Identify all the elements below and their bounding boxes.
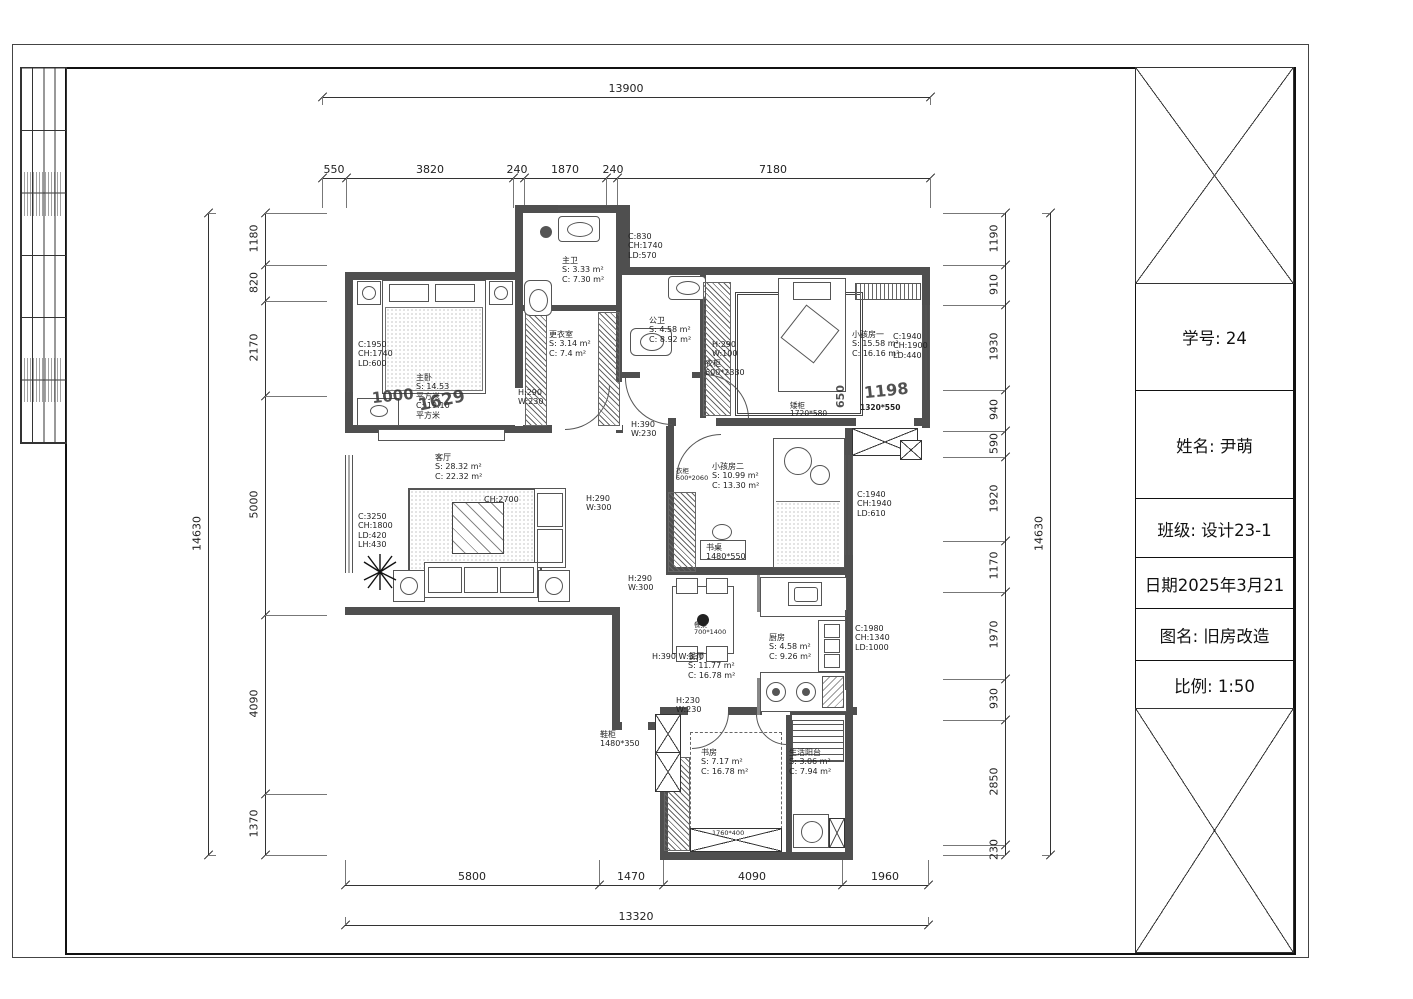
sofa-side xyxy=(534,488,566,568)
drawing-name-text: 图名: 旧房改造 xyxy=(1160,623,1270,647)
dim-extension xyxy=(208,213,216,214)
window-symbol xyxy=(845,455,853,555)
dim-label: 4090 xyxy=(722,870,782,883)
dim-label: 1470 xyxy=(601,870,661,883)
window-label-living: C:3250 CH:1800 LD:420 LH:430 xyxy=(358,512,393,550)
drawing-sheet: 学号: 24 姓名: 尹萌 班级: 设计23-1 日期2025年3月21 图名:… xyxy=(0,0,1413,999)
title-block-logo-box xyxy=(1135,67,1294,284)
wall xyxy=(845,715,853,860)
dim-label: 14630 xyxy=(1033,504,1046,564)
dim-label: 930 xyxy=(988,669,1001,729)
window-label-kids2: C:1940 CH:1940 LD:610 xyxy=(857,490,892,518)
wall xyxy=(622,267,930,275)
label-dining-table: 餐桌 700*1400 xyxy=(694,622,726,636)
dim-label: 2850 xyxy=(988,752,1001,812)
dim-label: 1970 xyxy=(988,605,1001,665)
shoe-cabinet xyxy=(655,714,681,754)
scale-text: 比例: 1:50 xyxy=(1174,673,1255,697)
wall xyxy=(345,272,523,280)
class-text: 班级: 设计23-1 xyxy=(1157,517,1271,541)
dim-line xyxy=(345,925,928,926)
door-opening xyxy=(676,418,716,426)
dim-extension xyxy=(322,97,323,105)
title-block-date: 日期2025年3月21 xyxy=(1135,557,1294,610)
revision-strip-text xyxy=(24,172,62,216)
dim-label: 7180 xyxy=(743,163,803,176)
title-block-drawing-name: 图名: 旧房改造 xyxy=(1135,608,1294,662)
dim-extension xyxy=(345,860,346,885)
wall xyxy=(660,852,853,860)
dining-chair xyxy=(676,578,698,594)
dim-extension xyxy=(346,178,347,208)
room-label-balcony: 生活阳台 S: 3.06 m² C: 7.94 m² xyxy=(789,748,831,776)
label-wardrobe-kids2: 衣柜 500*2060 xyxy=(676,468,708,482)
passage-opening xyxy=(552,425,616,433)
title-block-student-id: 学号: 24 xyxy=(1135,282,1294,392)
window-symbol xyxy=(558,205,610,213)
room-label-guest-bath: 公卫 S: 4.58 m² C: 8.92 m² xyxy=(649,316,691,344)
door-label-living-pass: H:290 W:300 xyxy=(586,494,611,513)
kitchen-opening xyxy=(757,612,760,678)
title-block-bottom-box xyxy=(1135,708,1294,953)
dim-extension xyxy=(599,860,600,885)
dim-extension xyxy=(265,855,327,856)
dim-line xyxy=(208,213,209,855)
dim-extension xyxy=(1042,855,1050,856)
door-label-study: H:230 W:230 xyxy=(676,696,701,715)
dim-extension xyxy=(617,178,618,208)
window-label-kitchen: C:1980 CH:1340 LD:1000 xyxy=(855,624,890,652)
dim-extension xyxy=(208,855,216,856)
dim-label: 1920 xyxy=(988,469,1001,529)
wardrobe-hangers xyxy=(598,312,620,426)
dim-label: 1370 xyxy=(248,794,261,854)
window-symbol xyxy=(345,455,353,573)
dim-extension xyxy=(345,917,346,925)
shoe-cabinet xyxy=(655,752,681,792)
title-block-name: 姓名: 尹萌 xyxy=(1135,390,1294,500)
dim-label: 240 xyxy=(583,163,643,176)
entry-opening xyxy=(622,722,648,730)
kids2-bed xyxy=(773,438,845,568)
dim-extension xyxy=(265,794,327,795)
dim-extension xyxy=(513,178,514,208)
door-label-dining: H:390 W:330 xyxy=(652,652,704,661)
dim-label: 5000 xyxy=(248,475,261,535)
room-label-kids2: 小孩房二 S: 10.99 m² C: 13.30 m² xyxy=(712,462,759,490)
wall xyxy=(515,205,523,280)
label-shoe-cabinet: 鞋柜 1480*350 xyxy=(600,731,640,749)
dim-extension xyxy=(265,265,327,266)
tv-table xyxy=(452,502,504,554)
student-id-text: 学号: 24 xyxy=(1182,325,1247,349)
door-label-kids2-top: H:390 W:230 xyxy=(631,420,656,439)
kitchen-sink xyxy=(788,582,822,606)
room-label-study: 书房 S: 7.17 m² C: 16.78 m² xyxy=(701,748,748,776)
washing-machine xyxy=(793,814,829,848)
stove-burner xyxy=(796,682,816,702)
dim-label: 910 xyxy=(988,255,1001,315)
dim-line xyxy=(322,97,930,98)
dim-extension xyxy=(322,178,323,208)
dim-extension xyxy=(606,178,607,208)
window-label-master: C:1950 CH:1740 LD:600 xyxy=(358,340,393,368)
dim-label: 590 xyxy=(988,414,1001,474)
dim-label: 14630 xyxy=(191,504,204,564)
dim-label: 3820 xyxy=(400,163,460,176)
fridge xyxy=(822,676,844,708)
dim-label: 13320 xyxy=(606,910,666,923)
dim-label: 820 xyxy=(248,253,261,313)
dim-label: 1930 xyxy=(988,317,1001,377)
cabinet-small xyxy=(900,440,922,460)
title-block-scale: 比例: 1:50 xyxy=(1135,660,1294,710)
dim-extension xyxy=(265,301,327,302)
dim-label: 5800 xyxy=(442,870,502,883)
dim-line xyxy=(1005,213,1006,855)
sofa-main xyxy=(424,562,538,598)
inner-dim-650: 650 xyxy=(835,385,848,408)
revision-strip-text xyxy=(24,358,62,402)
side-table xyxy=(538,570,570,602)
dim-extension xyxy=(930,178,931,208)
dim-label: 550 xyxy=(304,163,364,176)
dim-line xyxy=(1050,213,1051,855)
door-label-hall-wardrobe: H:290 W:100 xyxy=(712,340,737,359)
plant-icon xyxy=(362,552,398,592)
room-label-living: 客厅 S: 28.32 m² C: 22.32 m² xyxy=(435,453,482,481)
kids1-bed xyxy=(778,278,846,392)
dim-label: 230 xyxy=(988,820,1001,880)
nightstand xyxy=(357,281,381,305)
toilet xyxy=(524,280,552,316)
dim-extension xyxy=(265,213,327,214)
dim-label: 4090 xyxy=(248,674,261,734)
dim-line xyxy=(322,178,930,179)
dim-extension xyxy=(1042,213,1050,214)
room-label-master-bath: 主卫 S: 3.33 m² C: 7.30 m² xyxy=(562,256,604,284)
dim-extension xyxy=(663,860,664,885)
dim-extension xyxy=(930,97,931,105)
wardrobe-hangers xyxy=(525,312,547,426)
dim-extension xyxy=(265,615,327,616)
wall xyxy=(345,607,620,615)
dim-extension xyxy=(842,860,843,885)
ceiling-height-living: CH:2700 xyxy=(484,495,519,504)
nightstand xyxy=(489,281,513,305)
dim-label: 13900 xyxy=(596,82,656,95)
shower-head xyxy=(540,226,552,238)
door-label-dining-pass: H:290 W:300 xyxy=(628,574,653,593)
dim-label: 2170 xyxy=(248,318,261,378)
kids2-wardrobe xyxy=(668,492,696,572)
tv-cabinet xyxy=(378,429,505,441)
dim-extension xyxy=(265,396,327,397)
window-seat xyxy=(855,283,921,300)
balcony-cabinet xyxy=(829,818,845,848)
window-label-kids1: C:1940 CH:1900 LD:440 xyxy=(893,332,928,360)
dim-label: 1960 xyxy=(855,870,915,883)
dim-extension xyxy=(928,917,929,925)
title-block-class: 班级: 设计23-1 xyxy=(1135,498,1294,559)
dim-label: 1170 xyxy=(988,536,1001,596)
dining-chair xyxy=(706,578,728,594)
date-text: 日期2025年3月21 xyxy=(1145,572,1285,596)
opening-1198 xyxy=(856,418,914,426)
door-label-master: H:290 W:230 xyxy=(518,388,543,407)
stove-burner xyxy=(766,682,786,702)
label-wardrobe-hall: 衣柜 600*2330 xyxy=(705,360,745,378)
sink xyxy=(668,276,706,300)
room-label-kitchen: 厨房 S: 4.58 m² C: 9.26 m² xyxy=(769,633,811,661)
label-desk: 书桌 1480*550 xyxy=(706,544,746,562)
label-low-cabinet: 矮柜 1720*580 xyxy=(790,402,827,419)
dim-extension xyxy=(524,178,525,208)
sink xyxy=(558,216,600,242)
window-label-bath-top: C:830 CH:1740 LD:570 xyxy=(628,232,663,260)
dim-line xyxy=(265,213,266,855)
dim-extension xyxy=(928,860,929,885)
kitchen-modules xyxy=(818,620,846,672)
window-symbol xyxy=(345,300,353,392)
dining-table xyxy=(672,586,734,654)
window-symbol xyxy=(845,610,853,690)
room-label-cloakroom: 更衣室 S: 3.14 m² C: 7.4 m² xyxy=(549,330,591,358)
label-study-cabinet: 1760*400 xyxy=(712,830,744,837)
chair xyxy=(712,524,732,540)
name-text: 姓名: 尹萌 xyxy=(1176,433,1253,457)
wall xyxy=(612,607,620,730)
label-cabinet-1320: 1320*550 xyxy=(860,404,900,412)
